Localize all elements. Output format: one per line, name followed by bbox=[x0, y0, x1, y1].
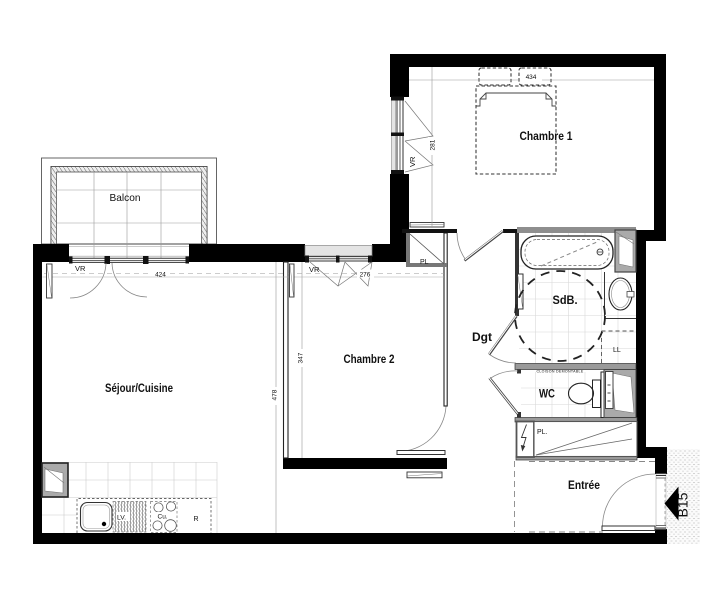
svg-text:SdB.: SdB. bbox=[553, 295, 578, 307]
svg-text:478: 478 bbox=[272, 389, 279, 400]
svg-text:Chambre 2: Chambre 2 bbox=[344, 354, 395, 366]
svg-text:Balcon: Balcon bbox=[110, 192, 141, 204]
svg-text:VR: VR bbox=[408, 156, 417, 167]
svg-text:Entrée: Entrée bbox=[568, 480, 600, 492]
svg-text:LV.: LV. bbox=[117, 515, 126, 522]
svg-text:WC: WC bbox=[539, 389, 555, 401]
svg-text:424: 424 bbox=[155, 272, 166, 279]
svg-text:R: R bbox=[194, 516, 199, 523]
svg-text:VR: VR bbox=[309, 265, 320, 274]
svg-text:276: 276 bbox=[360, 272, 371, 279]
svg-text:CLOISON DEMONTABLE: CLOISON DEMONTABLE bbox=[536, 369, 583, 373]
svg-text:PL.: PL. bbox=[537, 429, 548, 436]
svg-text:PL: PL bbox=[420, 259, 429, 266]
svg-text:281: 281 bbox=[430, 139, 437, 150]
svg-text:Chambre 1: Chambre 1 bbox=[520, 131, 574, 143]
svg-text:Dgt: Dgt bbox=[472, 332, 492, 344]
svg-text:Cu.: Cu. bbox=[158, 514, 168, 521]
svg-text:347: 347 bbox=[298, 352, 305, 363]
svg-text:B15: B15 bbox=[675, 492, 691, 517]
svg-text:Séjour/Cuisine: Séjour/Cuisine bbox=[105, 383, 173, 395]
svg-text:VR: VR bbox=[75, 264, 86, 273]
svg-text:434: 434 bbox=[526, 74, 537, 81]
svg-text:LL: LL bbox=[613, 347, 621, 354]
